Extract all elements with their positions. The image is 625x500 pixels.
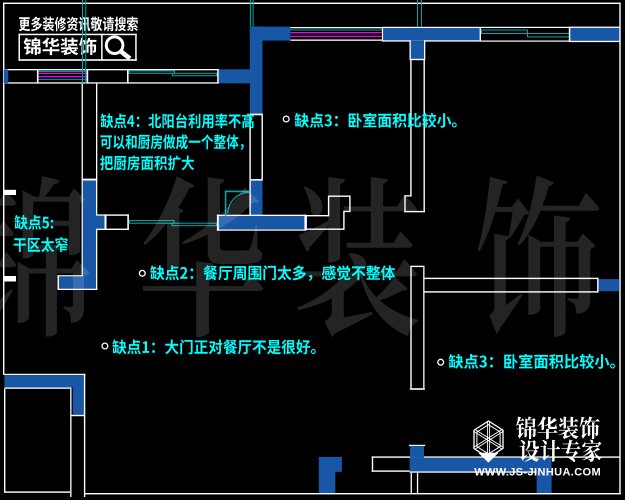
svg-text:WWW.JS-JINHUA.COM: WWW.JS-JINHUA.COM [474,466,601,478]
